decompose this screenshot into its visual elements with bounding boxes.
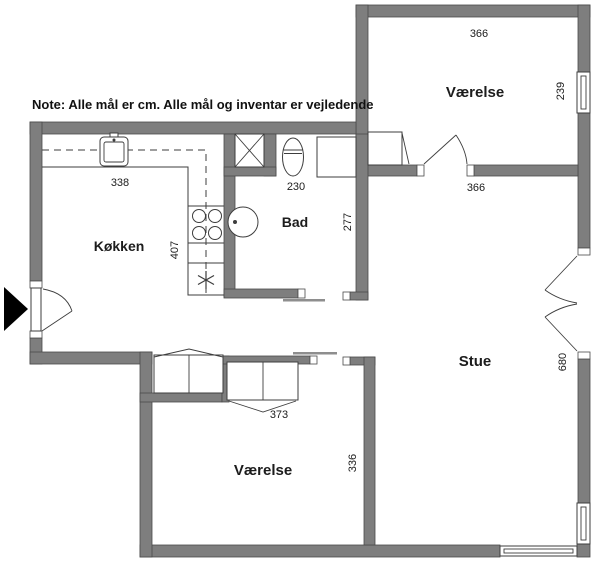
dim-kitchen-width: 338 — [111, 177, 129, 189]
wall-bath-bottom — [224, 289, 298, 298]
room-label-bedroom-bottom: Værelse — [234, 462, 292, 479]
wall-bottom — [140, 545, 500, 557]
entry-door — [31, 288, 72, 331]
window-bedroom1 — [577, 72, 590, 113]
dim-bedroom-top-width: 366 — [470, 28, 488, 40]
window-stue-bottom — [500, 546, 577, 556]
bedroom2-sliding-door — [293, 352, 337, 355]
duct-icon — [235, 134, 264, 167]
labels: Note: Alle mål er cm. Alle mål og invent… — [32, 28, 569, 479]
wall-top-right — [356, 5, 590, 17]
wall-bedroom2-niche — [140, 393, 222, 402]
jamb-entry-bottom — [30, 331, 42, 338]
room-label-living: Stue — [459, 353, 492, 370]
bedroom1-door — [424, 135, 467, 164]
wall-bath-right — [356, 134, 368, 300]
dim-living-width: 366 — [467, 182, 485, 194]
jamb-bath-stub — [343, 292, 350, 300]
dim-bath-width: 230 — [287, 181, 305, 193]
wall-bath-corner-stub — [350, 292, 368, 300]
wardrobe-hall — [154, 349, 223, 393]
wall-bedroom2-right — [364, 357, 375, 545]
jamb-bath — [298, 289, 305, 298]
room-label-bedroom-top: Værelse — [446, 84, 504, 101]
wall-right-seg3 — [578, 359, 590, 503]
wardrobe-bedroom1 — [368, 132, 409, 165]
washbasin-icon — [228, 207, 258, 237]
overhead-cabinet-line — [42, 150, 206, 293]
wall-right-seg2 — [578, 113, 590, 248]
dim-living-height: 680 — [557, 353, 569, 371]
bath-sliding-door — [283, 299, 325, 302]
kitchen-fixtures — [42, 133, 224, 295]
jamb-bedroom2 — [310, 356, 317, 364]
wall-right-corner — [577, 544, 590, 557]
freezer-icon — [198, 271, 214, 289]
dim-bedroom-bottom-width: 373 — [270, 409, 288, 421]
wall-duct-bottom — [224, 167, 276, 176]
floor-plan: Note: Alle mål er cm. Alle mål og invent… — [0, 0, 600, 567]
note-text: Note: Alle mål er cm. Alle mål og invent… — [32, 97, 374, 112]
room-label-bath: Bad — [282, 214, 308, 230]
dim-bedroom-top-height: 239 — [555, 82, 567, 100]
shower-icon — [317, 137, 356, 177]
wall-right-seg1 — [578, 5, 590, 72]
wall-bedroom2-left — [140, 352, 152, 557]
stove-icon — [193, 210, 222, 240]
wall-bedroom1-bottom-right — [474, 165, 578, 176]
room-label-kitchen: Køkken — [94, 238, 145, 254]
walls — [30, 5, 590, 557]
jamb-bedroom1-left — [417, 165, 424, 176]
wall-entry-bottom — [30, 352, 152, 364]
sink-icon — [100, 133, 128, 166]
dim-bath-height: 277 — [342, 213, 354, 231]
wall-top-left — [30, 122, 356, 134]
windows — [500, 72, 590, 556]
dim-kitchen-height: 407 — [169, 241, 181, 259]
jamb-bedroom2-stub — [343, 357, 350, 365]
jamb-balcony-top — [578, 248, 590, 255]
entrance-arrow-icon — [4, 287, 28, 331]
wall-left-upper — [30, 122, 42, 281]
balcony-double-door — [545, 256, 577, 351]
window-stue-right — [577, 503, 590, 544]
jamb-balcony-bottom — [578, 352, 590, 359]
jamb-entry-top — [30, 281, 42, 288]
wardrobe-bedroom2 — [227, 362, 298, 412]
jamb-bedroom1-right — [467, 165, 474, 176]
toilet-icon — [283, 138, 304, 176]
dim-bedroom-bottom-height: 336 — [347, 454, 359, 472]
